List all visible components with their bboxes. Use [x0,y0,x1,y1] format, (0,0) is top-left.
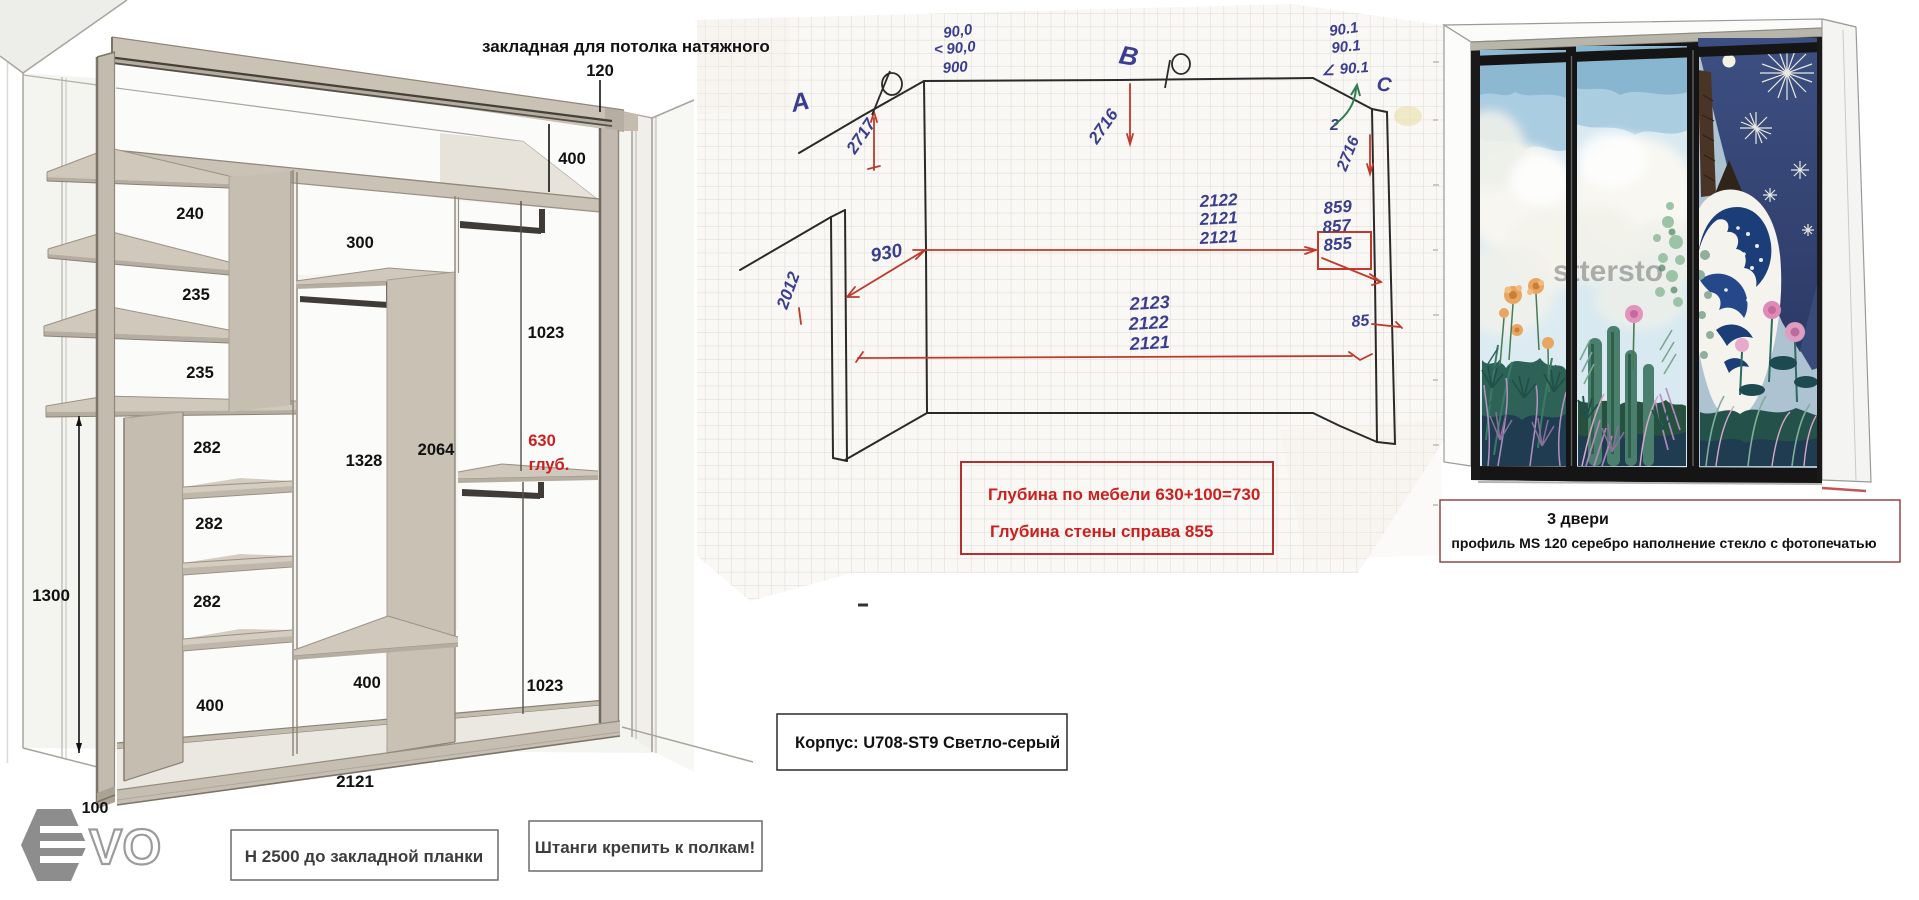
svg-text:профиль MS 120 серебро наполне: профиль MS 120 серебро наполнение стекло… [1451,535,1876,551]
svg-text:Глубина стены справа 855: Глубина стены справа 855 [990,522,1213,541]
svg-text:Штанги крепить к полкам!: Штанги крепить к полкам! [535,838,755,857]
svg-text:282: 282 [193,439,221,457]
svg-text:2064: 2064 [418,441,456,459]
svg-text:2123: 2123 [1128,292,1170,314]
svg-text:1328: 1328 [346,452,383,470]
svg-text:закладная для потолка натяжног: закладная для потолка натяжного [482,37,770,56]
svg-text:1023: 1023 [528,324,565,342]
svg-text:3 двери: 3 двери [1547,511,1609,528]
svg-text:2121: 2121 [1198,208,1238,229]
svg-text:630: 630 [528,432,556,450]
svg-text:400: 400 [558,150,586,168]
svg-text:235: 235 [186,364,214,382]
svg-text:120: 120 [586,62,614,80]
svg-text:∠: ∠ [1322,62,1335,78]
svg-text:Глубина по мебели 630+100=730: Глубина по мебели 630+100=730 [988,485,1260,504]
svg-text:400: 400 [196,697,224,715]
svg-text:90.1: 90.1 [1331,37,1362,57]
svg-text:235: 235 [182,286,210,304]
svg-text:1023: 1023 [527,677,564,695]
svg-text:855: 855 [1323,234,1353,255]
svg-text:85: 85 [1351,312,1372,331]
svg-text:Корпус: U708-ST9 Светло-серый: Корпус: U708-ST9 Светло-серый [795,734,1060,752]
svg-text:90,0: 90,0 [946,38,977,58]
svg-text:VO: VO [89,819,161,875]
svg-text:100: 100 [82,800,109,817]
svg-text:2: 2 [1329,117,1339,134]
svg-text:282: 282 [195,515,223,533]
svg-text:240: 240 [176,205,204,223]
svg-text:300: 300 [346,234,374,252]
svg-text:<: < [934,41,943,58]
svg-text:2121: 2121 [1198,227,1238,248]
svg-text:400: 400 [353,674,381,692]
svg-text:2121: 2121 [1128,332,1170,354]
svg-text:Н 2500 до закладной планки: Н 2500 до закладной планки [245,847,483,866]
svg-text:2122: 2122 [1127,312,1169,334]
svg-text:900: 900 [942,58,969,77]
svg-text:90.1: 90.1 [1339,59,1369,78]
svg-text:282: 282 [193,593,221,611]
svg-text:2121: 2121 [336,772,374,791]
svg-text:1300: 1300 [32,586,70,605]
svg-text:глуб.: глуб. [529,456,570,474]
